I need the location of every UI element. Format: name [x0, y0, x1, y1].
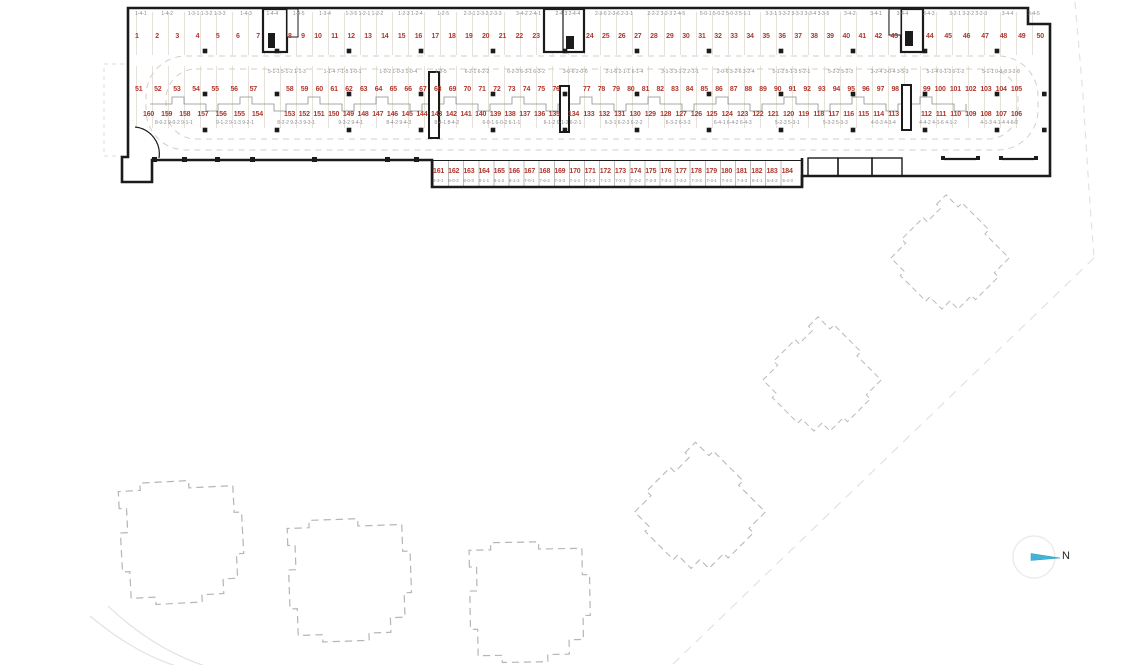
unit-code: 7-2-1 [615, 178, 626, 183]
unit-code: 3-4-5 [1028, 11, 1040, 17]
unit-codes-bottom: 9-3-18-0-28-0-38-1-18-1-28-1-37-0-17-6-2… [433, 177, 793, 183]
parking-space[interactable]: 118 [813, 111, 824, 118]
unit-codes-top: 1-4-11-4-21-3-1 1-3-2 1-3-31-4-31-4-41-4… [135, 11, 1040, 17]
unit-code: 3-4-4 [1002, 11, 1014, 17]
parking-row-island-bottom-seg4: 112111110109108107106 [921, 109, 1022, 119]
parking-space[interactable]: 127 [676, 111, 687, 118]
parking-space[interactable]: 25 [602, 33, 609, 40]
parking-space[interactable]: 107 [996, 111, 1007, 118]
parking-space[interactable]: 45 [944, 33, 951, 40]
unit-code: 6-2-3 6-3-1 6-3-2 [507, 69, 545, 75]
parking-space[interactable]: 115 [858, 111, 869, 118]
parking-space[interactable]: 182 [751, 168, 762, 175]
parking-space[interactable]: 151 [313, 111, 324, 118]
unit-code: 5-0-1 5-0-2 5-0-3 5-1-1 [700, 11, 751, 17]
parking-row-bottom: 1611621631641651661671681691701711721731… [433, 166, 793, 176]
parking-space[interactable]: 116 [843, 111, 854, 118]
unit-code: 6-4-1 6-4-2 6-4-3 [714, 120, 752, 126]
unit-code: 5-3-2 5-3-3 [823, 120, 848, 126]
parking-space[interactable]: 105 [1011, 86, 1022, 93]
unit-code: 9-1-2 9-1-3 9-2-1 [216, 120, 254, 126]
unit-code: 3-4-1 [870, 11, 882, 17]
parking-space[interactable]: 2 [155, 33, 159, 40]
parking-space[interactable]: 173 [615, 168, 626, 175]
unit-code: 6-2-1 6-2-2 [465, 69, 490, 75]
parking-row-top-seg2: 891011121314151617181920212223 [288, 31, 540, 41]
parking-space[interactable]: 128 [660, 111, 671, 118]
parking-space[interactable]: 140 [475, 111, 486, 118]
unit-code: 1-4-2 [161, 11, 173, 17]
unit-code: 4-0-3 4-3-4 [871, 120, 896, 126]
storage-rooms [808, 158, 1034, 176]
parking-space[interactable]: 145 [402, 111, 413, 118]
parking-space[interactable]: 37 [794, 33, 801, 40]
parking-space[interactable]: 15 [398, 33, 405, 40]
parking-space[interactable]: 79 [612, 86, 619, 93]
unit-code: 1-0-2 1-0-3 1-0-4 [379, 69, 417, 75]
parking-row-island-top-seg2: 58596061626364656667686970717273747576 [286, 84, 560, 94]
unit-code: 7-0-1 [524, 178, 535, 183]
unit-code: 3-0-6 2-0-6 [563, 69, 588, 75]
unit-codes-island-bottom: 8-0-2 9-0-2 9-1-19-1-2 9-1-3 9-2-18-2-2 … [155, 120, 1018, 126]
parking-row-island-bottom-seg2: 1531521511501491481471461451441431421411… [284, 109, 560, 119]
parking-space[interactable]: 39 [826, 33, 833, 40]
parking-space[interactable]: 69 [449, 86, 456, 93]
parking-space[interactable]: 87 [730, 86, 737, 93]
parking-space[interactable]: 73 [508, 86, 515, 93]
parking-space[interactable]: 167 [524, 168, 535, 175]
parking-space[interactable]: 169 [554, 168, 565, 175]
parking-space[interactable]: 154 [252, 111, 263, 118]
parking-space[interactable]: 158 [179, 111, 190, 118]
parking-space[interactable]: 164 [478, 168, 489, 175]
unit-code: 5-4-2 [767, 178, 778, 183]
parking-space[interactable]: 126 [691, 111, 702, 118]
parking-space[interactable]: 104 [996, 86, 1007, 93]
unit-code: 8-0-2 [448, 178, 459, 183]
parking-space[interactable]: 141 [460, 111, 471, 118]
parking-space[interactable]: 71 [478, 86, 485, 93]
unit-code: 1-4-1 [135, 11, 147, 17]
parking-space[interactable]: 34 [746, 33, 753, 40]
parking-space[interactable]: 18 [448, 33, 455, 40]
parking-space[interactable]: 99 [923, 86, 930, 93]
parking-space[interactable]: 93 [818, 86, 825, 93]
unit-code: 5-2-3 5-3-1 [775, 120, 800, 126]
parking-space[interactable]: 139 [490, 111, 501, 118]
building-footprints [118, 191, 1017, 663]
parking-space[interactable]: 153 [284, 111, 295, 118]
parking-space[interactable]: 124 [722, 111, 733, 118]
parking-space[interactable]: 28 [650, 33, 657, 40]
parking-space[interactable]: 119 [798, 111, 809, 118]
parking-space[interactable]: 77 [583, 86, 590, 93]
unit-code: 2-3-1 2-3-2 2-3-3 [464, 11, 502, 17]
unit-code: 7-1-2 [585, 178, 596, 183]
parking-space[interactable]: 14 [381, 33, 388, 40]
parking-space[interactable]: 132 [599, 111, 610, 118]
parking-space[interactable]: 70 [464, 86, 471, 93]
parking-space[interactable]: 57 [250, 86, 257, 93]
parking-space[interactable]: 43 [891, 33, 898, 40]
north-label: N [1062, 550, 1070, 562]
parking-space[interactable]: 137 [519, 111, 530, 118]
parking-space[interactable]: 27 [634, 33, 641, 40]
parking-space[interactable]: 179 [706, 168, 717, 175]
parking-space[interactable]: 129 [645, 111, 656, 118]
parking-space[interactable]: 135 [549, 111, 560, 118]
unit-code: 2-2-2 3-2-3 2-4-5 [647, 11, 685, 17]
parking-space[interactable]: 76 [552, 86, 559, 93]
parking-space[interactable]: 113 [888, 111, 899, 118]
unit-code: 5-1-4 0-1-3 0-1-2 [926, 69, 964, 75]
parking-space[interactable]: 65 [390, 86, 397, 93]
parking-space[interactable]: 29 [666, 33, 673, 40]
unit-codes-island-top: 5-1-1 5-1-2 1-1-31-1-4 7-1-5 1-0-11-0-2 … [268, 69, 1020, 75]
unit-code: 3-4-4 [897, 11, 909, 17]
parking-space[interactable]: 97 [877, 86, 884, 93]
parking-space[interactable]: 17 [432, 33, 439, 40]
unit-code: 5-1-1 0-3-8 3-2-8 [982, 69, 1020, 75]
parking-row-island-bottom-seg3: 1341331321311301291281271261251241231221… [568, 109, 899, 119]
unit-code: 8-0-2 9-0-2 9-1-1 [155, 120, 193, 126]
parking-space[interactable]: 75 [538, 86, 545, 93]
unit-code: 6-3-1 6-2-3 6-2-2 [605, 120, 643, 126]
unit-code: 8-2-2 9-2-3 9-3-1 [277, 120, 315, 126]
parking-space[interactable]: 146 [387, 111, 398, 118]
parking-space[interactable]: 47 [981, 33, 988, 40]
parking-space[interactable]: 181 [736, 168, 747, 175]
parking-space[interactable]: 123 [737, 111, 748, 118]
parking-space[interactable]: 131 [614, 111, 625, 118]
north-arrow-icon [1031, 554, 1060, 561]
parking-space[interactable]: 26 [618, 33, 625, 40]
unit-code: 1-4-3 [240, 11, 252, 17]
unit-code: 1-3-4 [319, 11, 331, 17]
parking-space[interactable]: 163 [463, 168, 474, 175]
parking-space[interactable]: 180 [721, 168, 732, 175]
parking-space[interactable]: 46 [963, 33, 970, 40]
parking-space[interactable]: 81 [642, 86, 649, 93]
parking-space[interactable]: 1 [135, 33, 139, 40]
parking-space[interactable]: 40 [843, 33, 850, 40]
unit-code: 5-4-3 [782, 178, 793, 183]
unit-code: 7-6-2 [539, 178, 550, 183]
unit-code: 2-3-6 2-3-6 2-3-1 [595, 11, 633, 17]
unit-code: 8-4-1 8-4-2 [434, 120, 459, 126]
parking-space[interactable]: 53 [173, 86, 180, 93]
parking-space[interactable]: 13 [364, 33, 371, 40]
parking-space[interactable]: 60 [316, 86, 323, 93]
parking-space[interactable]: 5 [216, 33, 220, 40]
parking-space[interactable]: 144 [416, 111, 427, 118]
parking-space[interactable]: 152 [299, 111, 310, 118]
parking-space[interactable]: 7 [256, 33, 260, 40]
unit-code: 3-4-3 [923, 11, 935, 17]
unit-code: 3-4-2 [844, 11, 856, 17]
parking-space[interactable]: 85 [701, 86, 708, 93]
parking-space[interactable]: 149 [343, 111, 354, 118]
parking-space[interactable]: 133 [583, 111, 594, 118]
parking-space[interactable]: 12 [347, 33, 354, 40]
parking-space[interactable]: 62 [345, 86, 352, 93]
parking-space[interactable]: 56 [230, 86, 237, 93]
unit-code: 6-3-2 6-3-3 [666, 120, 691, 126]
parking-space[interactable]: 83 [671, 86, 678, 93]
parking-space[interactable]: 142 [446, 111, 457, 118]
parking-space[interactable]: 84 [686, 86, 693, 93]
parking-space[interactable]: 148 [358, 111, 369, 118]
parking-space[interactable]: 157 [197, 111, 208, 118]
parking-space[interactable]: 10 [314, 33, 321, 40]
parking-space[interactable]: 156 [216, 111, 227, 118]
parking-space[interactable]: 16 [415, 33, 422, 40]
parking-space[interactable]: 8 [288, 33, 292, 40]
parking-space[interactable]: 183 [766, 168, 777, 175]
parking-space[interactable]: 58 [286, 86, 293, 93]
unit-code: 5-4-1 [752, 178, 763, 183]
parking-space[interactable]: 61 [330, 86, 337, 93]
unit-code: 7-4-2 [722, 178, 733, 183]
unit-code: 7-4-3 [737, 178, 748, 183]
parking-space[interactable]: 55 [211, 86, 218, 93]
unit-code: 1-2-5 [437, 11, 449, 17]
parking-space[interactable]: 20 [482, 33, 489, 40]
unit-code: 3-2-1 3-2-2 3-2-3 [949, 11, 987, 17]
parking-space[interactable]: 82 [656, 86, 663, 93]
parking-space[interactable]: 112 [921, 111, 932, 118]
unit-code: 2-1-6 2-1-1 6-1-4 [605, 69, 643, 75]
parking-space[interactable]: 35 [762, 33, 769, 40]
unit-code: 1-3-1 1-3-2 1-3-3 [188, 11, 226, 17]
parking-space[interactable]: 121 [768, 111, 779, 118]
unit-code: 8-0-3 [463, 178, 474, 183]
parking-space[interactable]: 38 [810, 33, 817, 40]
parking-space[interactable]: 48 [1000, 33, 1007, 40]
parking-space[interactable]: 44 [926, 33, 933, 40]
parking-space[interactable]: 161 [433, 168, 444, 175]
parking-space[interactable]: 171 [585, 168, 596, 175]
parking-space[interactable]: 80 [627, 86, 634, 93]
parking-space[interactable]: 59 [301, 86, 308, 93]
unit-code: 5-1-2 5-1-3 5-2-1 [772, 69, 810, 75]
parking-space[interactable]: 19 [465, 33, 472, 40]
unit-code: 4-4-2 4-1-6 4-1-2 [919, 120, 957, 126]
unit-code: 6-0-1 6-0-2 6-1-1 [482, 120, 520, 126]
unit-code: 2-4-3 2-4-4 [556, 11, 581, 17]
parking-space[interactable]: 101 [950, 86, 961, 93]
parking-space[interactable]: 22 [516, 33, 523, 40]
parking-row-island-top-seg4: 99100101102103104105 [923, 84, 1022, 94]
parking-space[interactable]: 66 [404, 86, 411, 93]
parking-space[interactable]: 90 [774, 86, 781, 93]
parking-space[interactable]: 111 [936, 111, 946, 118]
parking-space[interactable]: 24 [586, 33, 593, 40]
unit-code: 7-3-1 [661, 178, 672, 183]
parking-space[interactable]: 175 [645, 168, 656, 175]
parking-space[interactable]: 4 [196, 33, 200, 40]
parking-space[interactable]: 41 [859, 33, 866, 40]
parking-space[interactable]: 50 [1037, 33, 1044, 40]
unit-code: 5-2-2 5-2-3 [828, 69, 853, 75]
unit-code: 7-3-3 [555, 178, 566, 183]
unit-code: 2-0-6 3-2-6 3-2-4 [717, 69, 755, 75]
parking-space[interactable]: 31 [698, 33, 705, 40]
unit-code: 8-1-2 [494, 178, 505, 183]
unit-code: 1-0-5 [435, 69, 447, 75]
parking-space[interactable]: 49 [1018, 33, 1025, 40]
parking-space[interactable]: 114 [873, 111, 884, 118]
unit-code: 1-3-5 1-2-1 1-2-2 [346, 11, 384, 17]
parking-row-top-seg1: 1234567 [135, 31, 260, 41]
parking-space[interactable]: 74 [523, 86, 530, 93]
parking-space[interactable]: 30 [682, 33, 689, 40]
parking-space[interactable]: 6 [236, 33, 240, 40]
parking-space[interactable]: 103 [980, 86, 991, 93]
parking-space[interactable]: 166 [509, 168, 520, 175]
parking-space[interactable]: 68 [434, 86, 441, 93]
parking-space[interactable]: 9 [301, 33, 305, 40]
unit-code: 1-2-3 1-2-4 [398, 11, 423, 17]
parking-space[interactable]: 96 [862, 86, 869, 93]
unit-code: 9-3-2 9-4-1 [338, 120, 363, 126]
parking-space[interactable]: 32 [714, 33, 721, 40]
unit-code: 7-2-3 [646, 178, 657, 183]
unit-code: 9-3-1 [433, 178, 444, 183]
unit-code: 3-4-2 2-4-1 [516, 11, 541, 17]
parking-space[interactable]: 78 [598, 86, 605, 93]
parking-space[interactable]: 184 [782, 168, 793, 175]
unit-code: 7-1-1 [570, 178, 581, 183]
parking-site-plan: 1-4-11-4-21-3-1 1-3-2 1-3-31-4-31-4-41-4… [0, 0, 1130, 665]
parking-space[interactable]: 36 [778, 33, 785, 40]
parking-space[interactable]: 64 [375, 86, 382, 93]
parking-space[interactable]: 170 [569, 168, 580, 175]
parking-space[interactable]: 110 [950, 111, 961, 118]
parking-space[interactable]: 125 [706, 111, 717, 118]
parking-row-island-top-seg1: 51525354555657 [135, 84, 257, 94]
unit-code: 8-1-3 [509, 178, 520, 183]
parking-space[interactable]: 23 [532, 33, 539, 40]
parking-space[interactable]: 102 [965, 86, 976, 93]
unit-code: 4-1-3 4-1-4 4-6-2 [980, 120, 1018, 126]
unit-code: 1-4-4 [266, 11, 278, 17]
unit-code: 5-1-1 5-1-2 1-1-3 [268, 69, 306, 75]
parking-space[interactable]: 21 [499, 33, 506, 40]
unit-code: 3-2-4 3-0-4 3-5-3 [871, 69, 909, 75]
parking-space[interactable]: 120 [783, 111, 794, 118]
parking-space[interactable]: 147 [372, 111, 383, 118]
parking-space[interactable]: 174 [630, 168, 641, 175]
parking-space[interactable]: 67 [419, 86, 426, 93]
parking-space[interactable]: 3 [175, 33, 179, 40]
parking-space[interactable]: 52 [154, 86, 161, 93]
parking-space[interactable]: 159 [161, 111, 172, 118]
parking-space[interactable]: 106 [1011, 111, 1022, 118]
parking-space[interactable]: 109 [965, 111, 976, 118]
parking-space[interactable]: 51 [135, 86, 142, 93]
parking-space[interactable]: 63 [360, 86, 367, 93]
parking-space[interactable]: 162 [448, 168, 459, 175]
unit-code: 7-3-2 [676, 178, 687, 183]
parking-space[interactable]: 54 [192, 86, 199, 93]
parking-row-island-top-seg3: 7778798081828384858687888990919293949596… [583, 84, 899, 94]
unit-code: 3-3-1 3-3-2 3-3-3 3-3-4 3-3-5 [765, 11, 829, 17]
parking-space[interactable]: 117 [828, 111, 839, 118]
unit-code: 6-1-2 6-1-3 6-2-1 [544, 120, 582, 126]
parking-space[interactable]: 98 [891, 86, 898, 93]
parking-space[interactable]: 91 [789, 86, 796, 93]
parking-space[interactable]: 178 [691, 168, 702, 175]
parking-space[interactable]: 160 [143, 111, 154, 118]
parking-space[interactable]: 130 [629, 111, 640, 118]
parking-space[interactable]: 94 [833, 86, 840, 93]
parking-space[interactable]: 136 [534, 111, 545, 118]
parking-space[interactable]: 95 [847, 86, 854, 93]
parking-row-top-seg4: 44454647484950 [926, 31, 1044, 41]
unit-code: 1-4-5 [293, 11, 305, 17]
parking-space[interactable]: 89 [759, 86, 766, 93]
parking-space[interactable]: 86 [715, 86, 722, 93]
parking-space[interactable]: 150 [328, 111, 339, 118]
parking-space[interactable]: 42 [875, 33, 882, 40]
unit-code: 1-1-4 7-1-5 1-0-1 [324, 69, 362, 75]
unit-code: 3-1-3 3-1-2 2-1-1 [661, 69, 699, 75]
parking-space[interactable]: 155 [234, 111, 245, 118]
parking-space[interactable]: 143 [431, 111, 442, 118]
parking-space[interactable]: 138 [505, 111, 516, 118]
parking-space[interactable]: 11 [331, 33, 338, 40]
unit-code: 8-1-1 [479, 178, 490, 183]
parking-space[interactable]: 165 [494, 168, 505, 175]
parking-space[interactable]: 172 [600, 168, 611, 175]
parking-space[interactable]: 88 [745, 86, 752, 93]
parking-space[interactable]: 100 [935, 86, 946, 93]
parking-space[interactable]: 134 [568, 111, 579, 118]
unit-code: 7-1-3 [600, 178, 611, 183]
unit-code: 7-4-1 [706, 178, 717, 183]
parking-space[interactable]: 168 [539, 168, 550, 175]
compass-icon [1013, 536, 1060, 578]
parking-space[interactable]: 177 [676, 168, 687, 175]
parking-space[interactable]: 72 [493, 86, 500, 93]
parking-space[interactable]: 108 [980, 111, 991, 118]
parking-row-island-bottom-seg1: 160159158157156155154 [143, 109, 263, 119]
parking-space[interactable]: 33 [730, 33, 737, 40]
unit-code: 7-2-2 [630, 178, 641, 183]
parking-space[interactable]: 122 [752, 111, 763, 118]
parking-row-top-seg3: 2425262728293031323334353637383940414243 [586, 31, 898, 41]
parking-space[interactable]: 176 [660, 168, 671, 175]
unit-code: 7-3-3 [691, 178, 702, 183]
unit-code: 8-4-2 9-4-3 [386, 120, 411, 126]
parking-space[interactable]: 92 [803, 86, 810, 93]
